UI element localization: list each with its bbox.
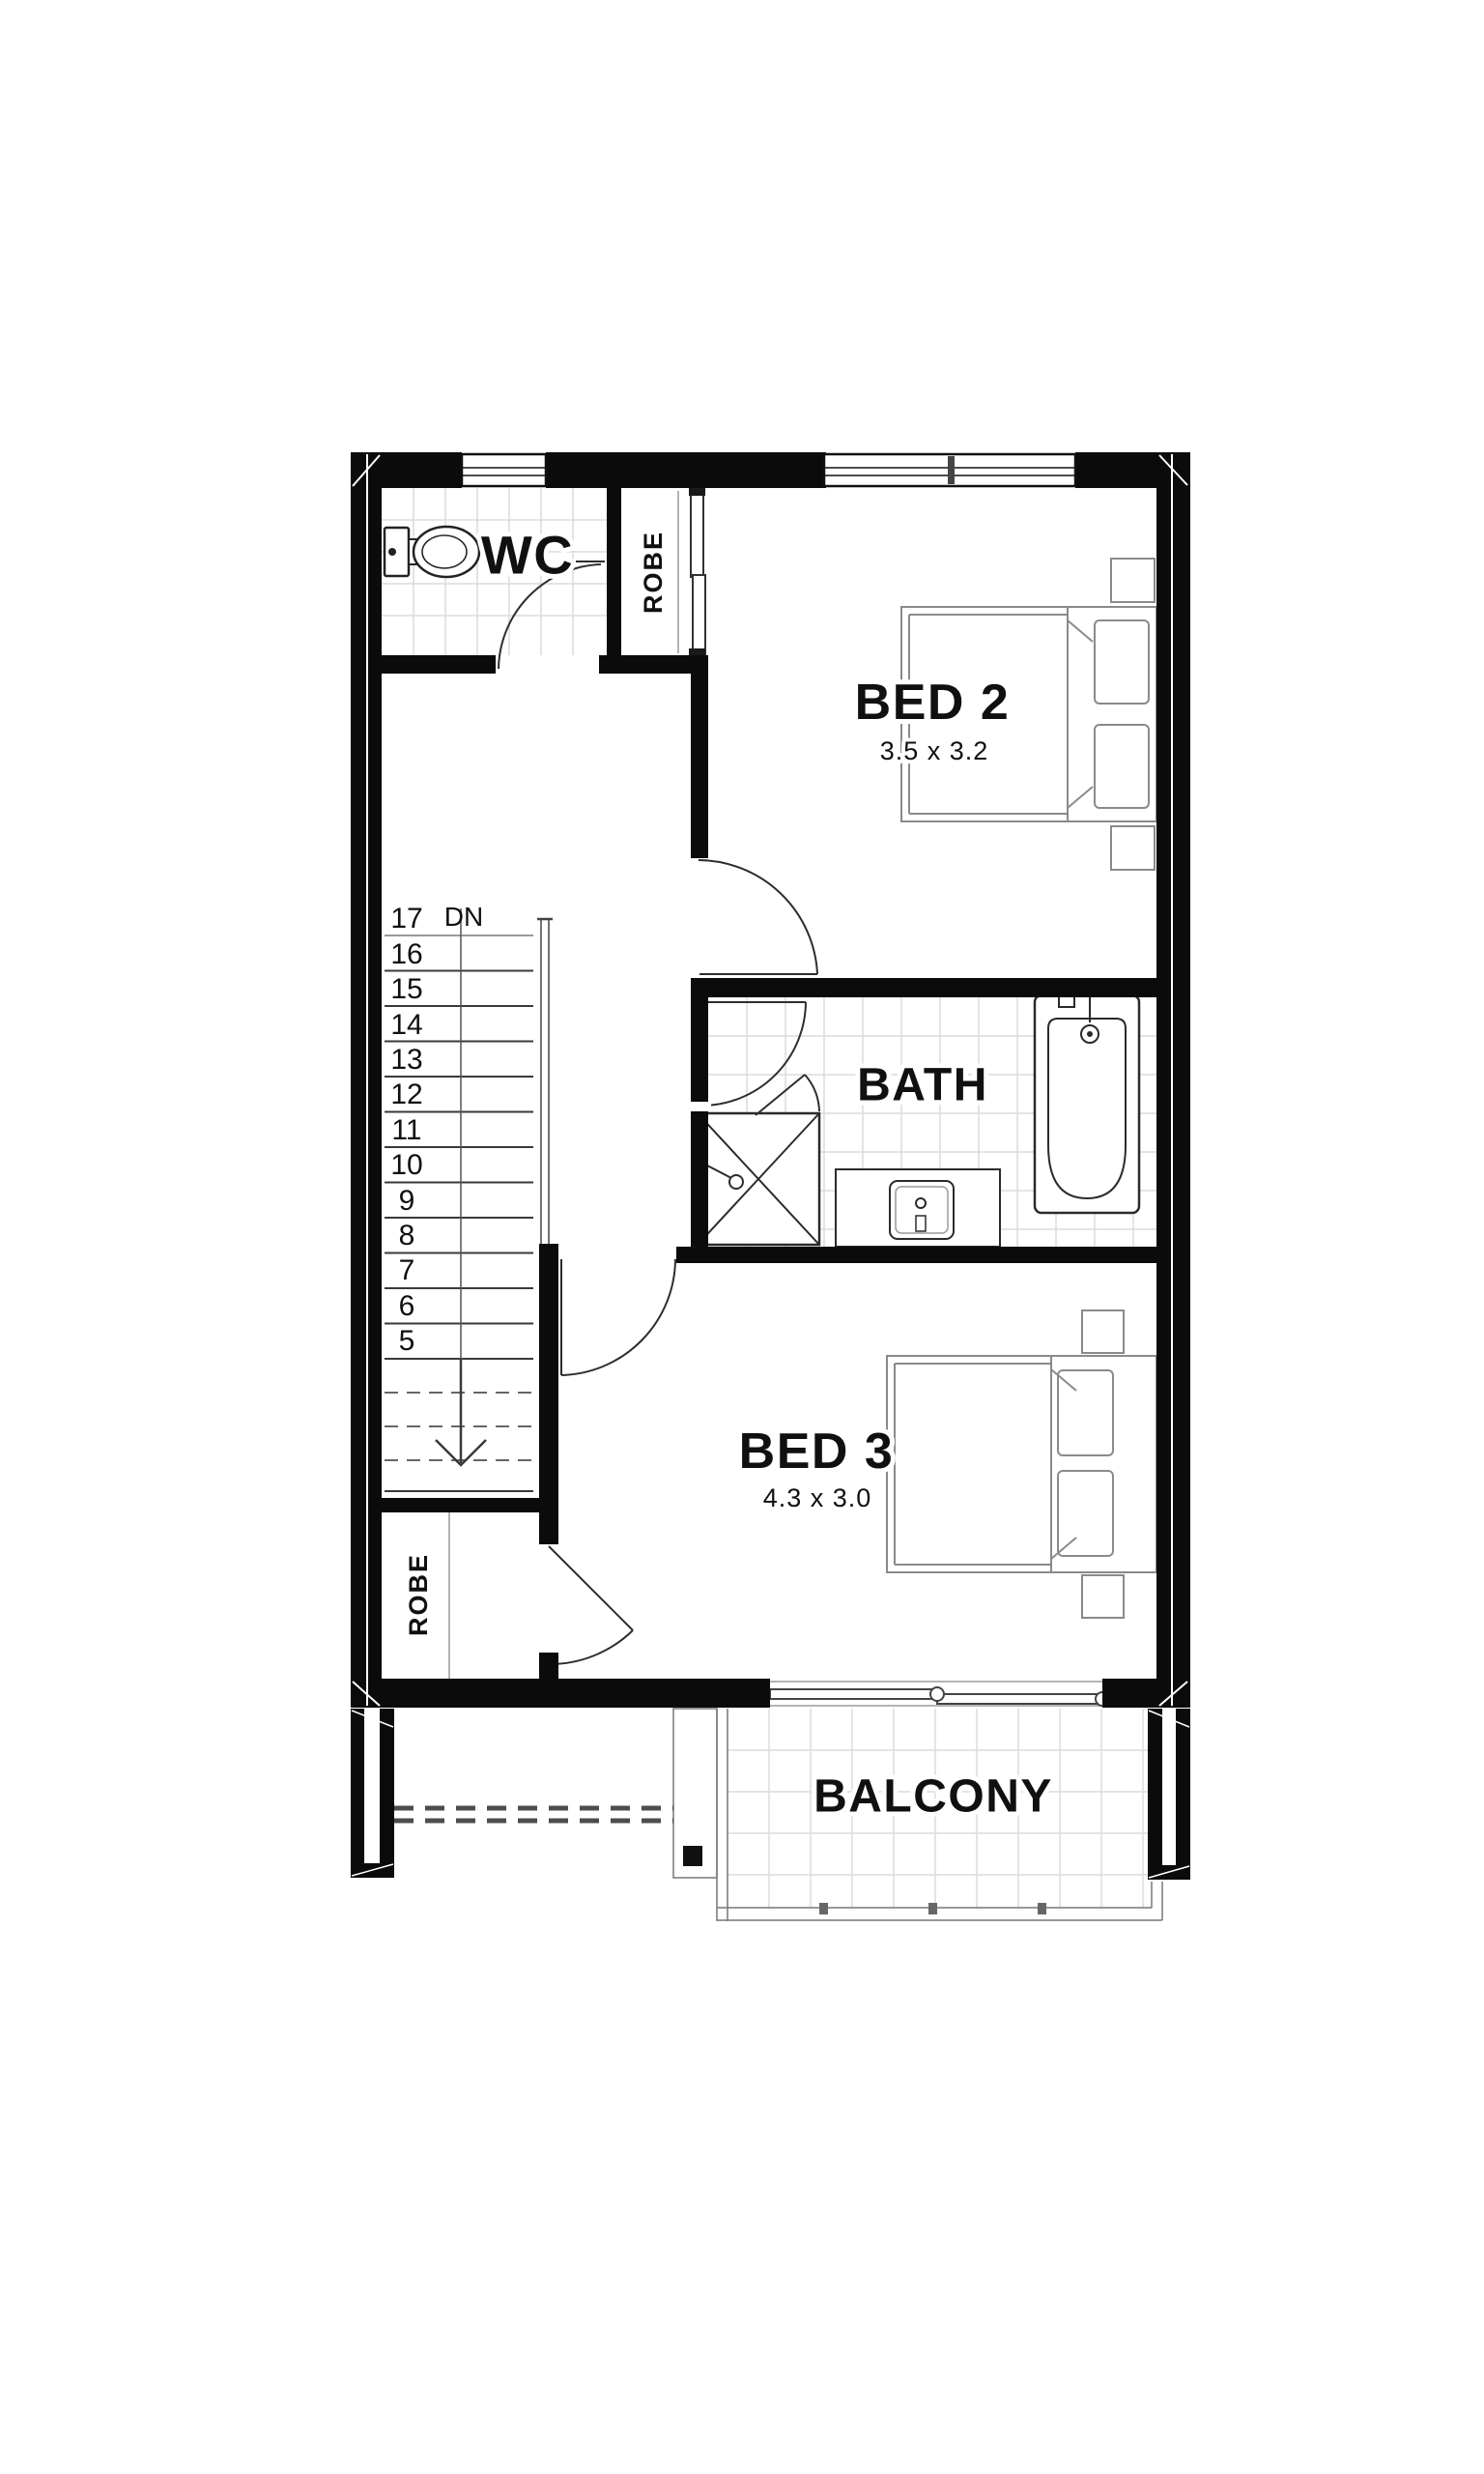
svg-text:10: 10 [390, 1149, 422, 1181]
svg-text:16: 16 [390, 938, 422, 970]
toilet-fixture [385, 527, 479, 577]
bathtub-fixture [1035, 995, 1139, 1213]
bed3-label: BED 3 [739, 1424, 895, 1480]
robe-upper-label: ROBE [639, 531, 668, 614]
bath-label: BATH [857, 1060, 988, 1111]
svg-text:5: 5 [399, 1325, 415, 1357]
robe-upper-sliding-door [678, 487, 705, 657]
svg-text:9: 9 [399, 1185, 415, 1217]
wc-label: WC [481, 525, 574, 586]
bed3-door [561, 1259, 675, 1375]
robe-lower-door [549, 1546, 633, 1664]
bath-door [701, 1002, 806, 1106]
svg-text:6: 6 [399, 1290, 415, 1322]
svg-text:14: 14 [390, 1009, 422, 1041]
vanity-basin-fixture [836, 1169, 1000, 1247]
balcony-label: BALCONY [813, 1771, 1053, 1823]
bed2-door [699, 860, 817, 974]
stair-down-label: DN [444, 902, 483, 932]
shower-fixture [694, 1113, 819, 1245]
svg-text:17: 17 [390, 903, 422, 935]
svg-text:12: 12 [390, 1079, 422, 1110]
shower-screen-door [756, 1075, 819, 1115]
bed2-label: BED 2 [855, 675, 1011, 731]
wc-window [462, 454, 546, 486]
bed2-window [824, 454, 1075, 486]
bath-door-hinge-notch [688, 1102, 711, 1111]
bed3-dimensions: 4.3 x 3.0 [763, 1483, 872, 1512]
bed2-dimensions: 3.5 x 3.2 [880, 736, 989, 765]
svg-text:15: 15 [390, 973, 422, 1005]
svg-text:8: 8 [399, 1220, 415, 1251]
balcony-sliding-door [770, 1682, 1109, 1706]
svg-text:11: 11 [391, 1114, 421, 1146]
balcony-post [683, 1846, 702, 1866]
floor-plan-page: WC ROBE BED 2 3.5 x 3.2 BATH BED 3 4.3 x… [0, 0, 1484, 2474]
svg-text:7: 7 [399, 1254, 415, 1286]
svg-text:13: 13 [390, 1044, 422, 1076]
stair-down-arrow [436, 1359, 486, 1465]
bed3-furniture [887, 1310, 1156, 1618]
robe-lower-label: ROBE [404, 1553, 433, 1636]
stair-handrail [537, 919, 553, 1246]
floor-plan-drawing: WC ROBE BED 2 3.5 x 3.2 BATH BED 3 4.3 x… [0, 0, 1484, 2474]
roof-line-dashed [394, 1808, 673, 1821]
